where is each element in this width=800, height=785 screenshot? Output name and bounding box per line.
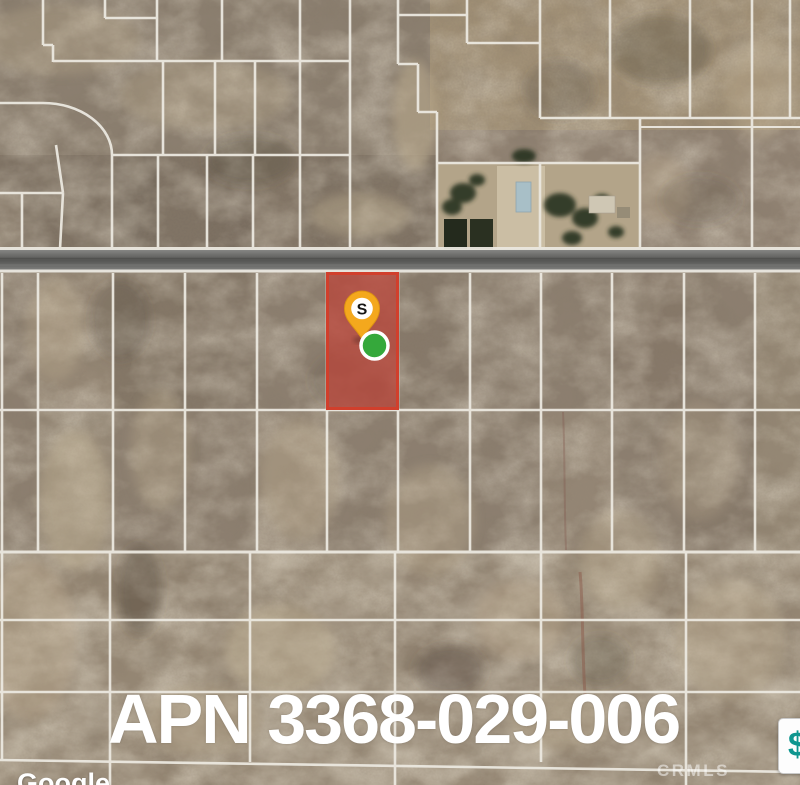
crmls-watermark: CRMLS bbox=[657, 762, 730, 779]
dollar-icon: $ bbox=[779, 719, 800, 771]
pin-letter: S bbox=[357, 302, 368, 319]
google-watermark: Google bbox=[17, 770, 110, 785]
listing-map-screenshot: S APN 3368-029-006 Google CRMLS $ bbox=[0, 0, 800, 785]
apn-label: APN 3368-029-006 bbox=[108, 684, 679, 754]
map-canvas[interactable]: S bbox=[0, 0, 800, 785]
status-dot-icon[interactable] bbox=[361, 332, 388, 359]
road bbox=[0, 249, 800, 272]
price-marker-pill[interactable]: $ bbox=[778, 718, 800, 774]
homestead-compound bbox=[437, 149, 640, 252]
